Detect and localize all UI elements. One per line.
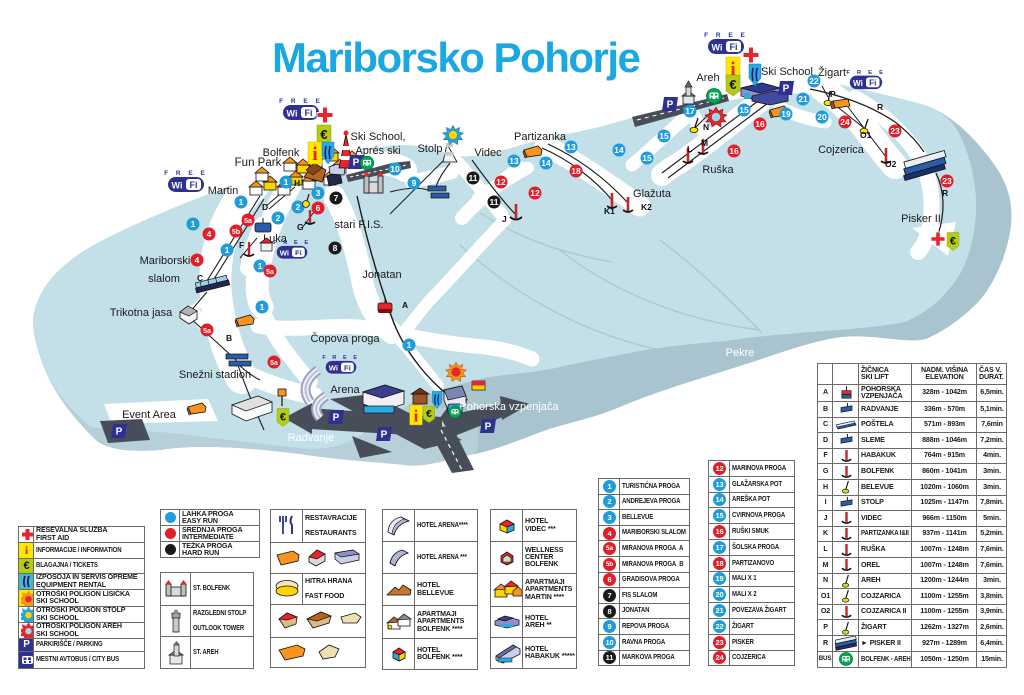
svg-text:16: 16 — [755, 119, 765, 129]
svg-text:6: 6 — [316, 203, 321, 213]
svg-text:Ski School: Ski School — [761, 66, 813, 78]
svg-text:M: M — [701, 138, 708, 148]
svg-text:Pekre: Pekre — [726, 347, 755, 359]
svg-text:9: 9 — [412, 178, 417, 188]
svg-text:11: 11 — [469, 173, 478, 183]
svg-text:14: 14 — [614, 145, 624, 155]
svg-text:2: 2 — [296, 202, 301, 212]
svg-text:4: 4 — [195, 255, 200, 265]
svg-text:Žigart: Žigart — [818, 66, 846, 79]
svg-text:21: 21 — [798, 94, 808, 104]
svg-text:Mariborski: Mariborski — [140, 255, 191, 267]
svg-text:23: 23 — [942, 176, 952, 186]
svg-text:1: 1 — [225, 245, 230, 255]
svg-text:1: 1 — [239, 197, 244, 207]
svg-text:20: 20 — [817, 112, 827, 122]
svg-text:Čopova proga: Čopova proga — [310, 332, 380, 345]
svg-text:Videc: Videc — [474, 147, 502, 159]
svg-text:11: 11 — [490, 197, 499, 207]
svg-text:R: R — [877, 102, 883, 112]
svg-text:G: G — [297, 222, 304, 232]
svg-text:14: 14 — [541, 158, 551, 168]
svg-text:Martin: Martin — [208, 185, 239, 197]
svg-text:Pohorska vzpenjača: Pohorska vzpenjača — [459, 401, 559, 413]
svg-text:P: P — [830, 89, 836, 99]
svg-text:1: 1 — [284, 177, 289, 187]
svg-text:K2: K2 — [641, 202, 652, 212]
svg-text:5a: 5a — [270, 360, 278, 367]
svg-text:24: 24 — [840, 117, 850, 127]
svg-text:O2: O2 — [885, 159, 897, 169]
svg-text:5a: 5a — [203, 328, 211, 335]
svg-text:15: 15 — [642, 153, 652, 163]
svg-text:Pisker II: Pisker II — [901, 213, 941, 225]
svg-text:L: L — [687, 144, 692, 154]
svg-text:5a: 5a — [244, 218, 252, 225]
svg-text:10: 10 — [390, 164, 400, 174]
svg-text:13: 13 — [509, 156, 519, 166]
svg-text:slalom: slalom — [148, 273, 180, 285]
svg-text:Cojzerica: Cojzerica — [818, 144, 865, 156]
svg-text:17: 17 — [685, 106, 695, 116]
svg-text:K1: K1 — [604, 206, 615, 216]
svg-text:1: 1 — [260, 302, 265, 312]
svg-text:1: 1 — [191, 219, 196, 229]
svg-text:18: 18 — [571, 166, 581, 176]
svg-text:3: 3 — [316, 188, 321, 198]
svg-text:N: N — [703, 122, 709, 132]
svg-text:F: F — [239, 240, 244, 250]
svg-text:12: 12 — [530, 188, 540, 198]
svg-text:23: 23 — [890, 126, 900, 136]
svg-text:Ruška: Ruška — [702, 164, 734, 176]
svg-text:13: 13 — [566, 142, 576, 152]
svg-text:Event Area: Event Area — [122, 409, 177, 421]
svg-text:stari F.I.S.: stari F.I.S. — [335, 219, 384, 231]
svg-text:Radvanje: Radvanje — [288, 432, 334, 444]
svg-text:15: 15 — [659, 131, 669, 141]
svg-text:H: H — [294, 178, 300, 188]
svg-text:B: B — [226, 333, 232, 343]
svg-text:Glažuta: Glažuta — [633, 188, 672, 200]
svg-text:Snežni stadion: Snežni stadion — [179, 369, 251, 381]
svg-text:1: 1 — [407, 340, 412, 350]
svg-text:5b: 5b — [232, 229, 240, 236]
svg-text:R: R — [942, 188, 948, 198]
svg-text:Jonatan: Jonatan — [362, 269, 401, 281]
svg-text:J: J — [502, 214, 507, 224]
svg-text:Fun Park: Fun Park — [235, 157, 282, 169]
svg-text:19: 19 — [781, 109, 791, 119]
svg-text:D: D — [262, 202, 268, 212]
svg-text:Areh: Areh — [696, 72, 719, 84]
svg-text:2: 2 — [276, 213, 281, 223]
svg-text:1: 1 — [258, 261, 263, 271]
svg-text:Stolp: Stolp — [417, 143, 442, 155]
svg-text:C: C — [197, 273, 203, 283]
svg-text:O1: O1 — [860, 130, 872, 140]
svg-text:Ski School,: Ski School, — [350, 131, 405, 143]
svg-text:8: 8 — [333, 243, 338, 253]
svg-text:Arena: Arena — [330, 384, 360, 396]
svg-text:16: 16 — [729, 146, 739, 156]
svg-text:4: 4 — [207, 229, 212, 239]
svg-text:7: 7 — [334, 193, 339, 203]
svg-text:5a: 5a — [266, 269, 274, 276]
svg-text:A: A — [402, 300, 408, 310]
svg-text:15: 15 — [739, 105, 749, 115]
svg-text:12: 12 — [496, 177, 506, 187]
svg-text:Trikotna jasa: Trikotna jasa — [110, 307, 173, 319]
svg-text:Partizanka: Partizanka — [514, 131, 567, 143]
